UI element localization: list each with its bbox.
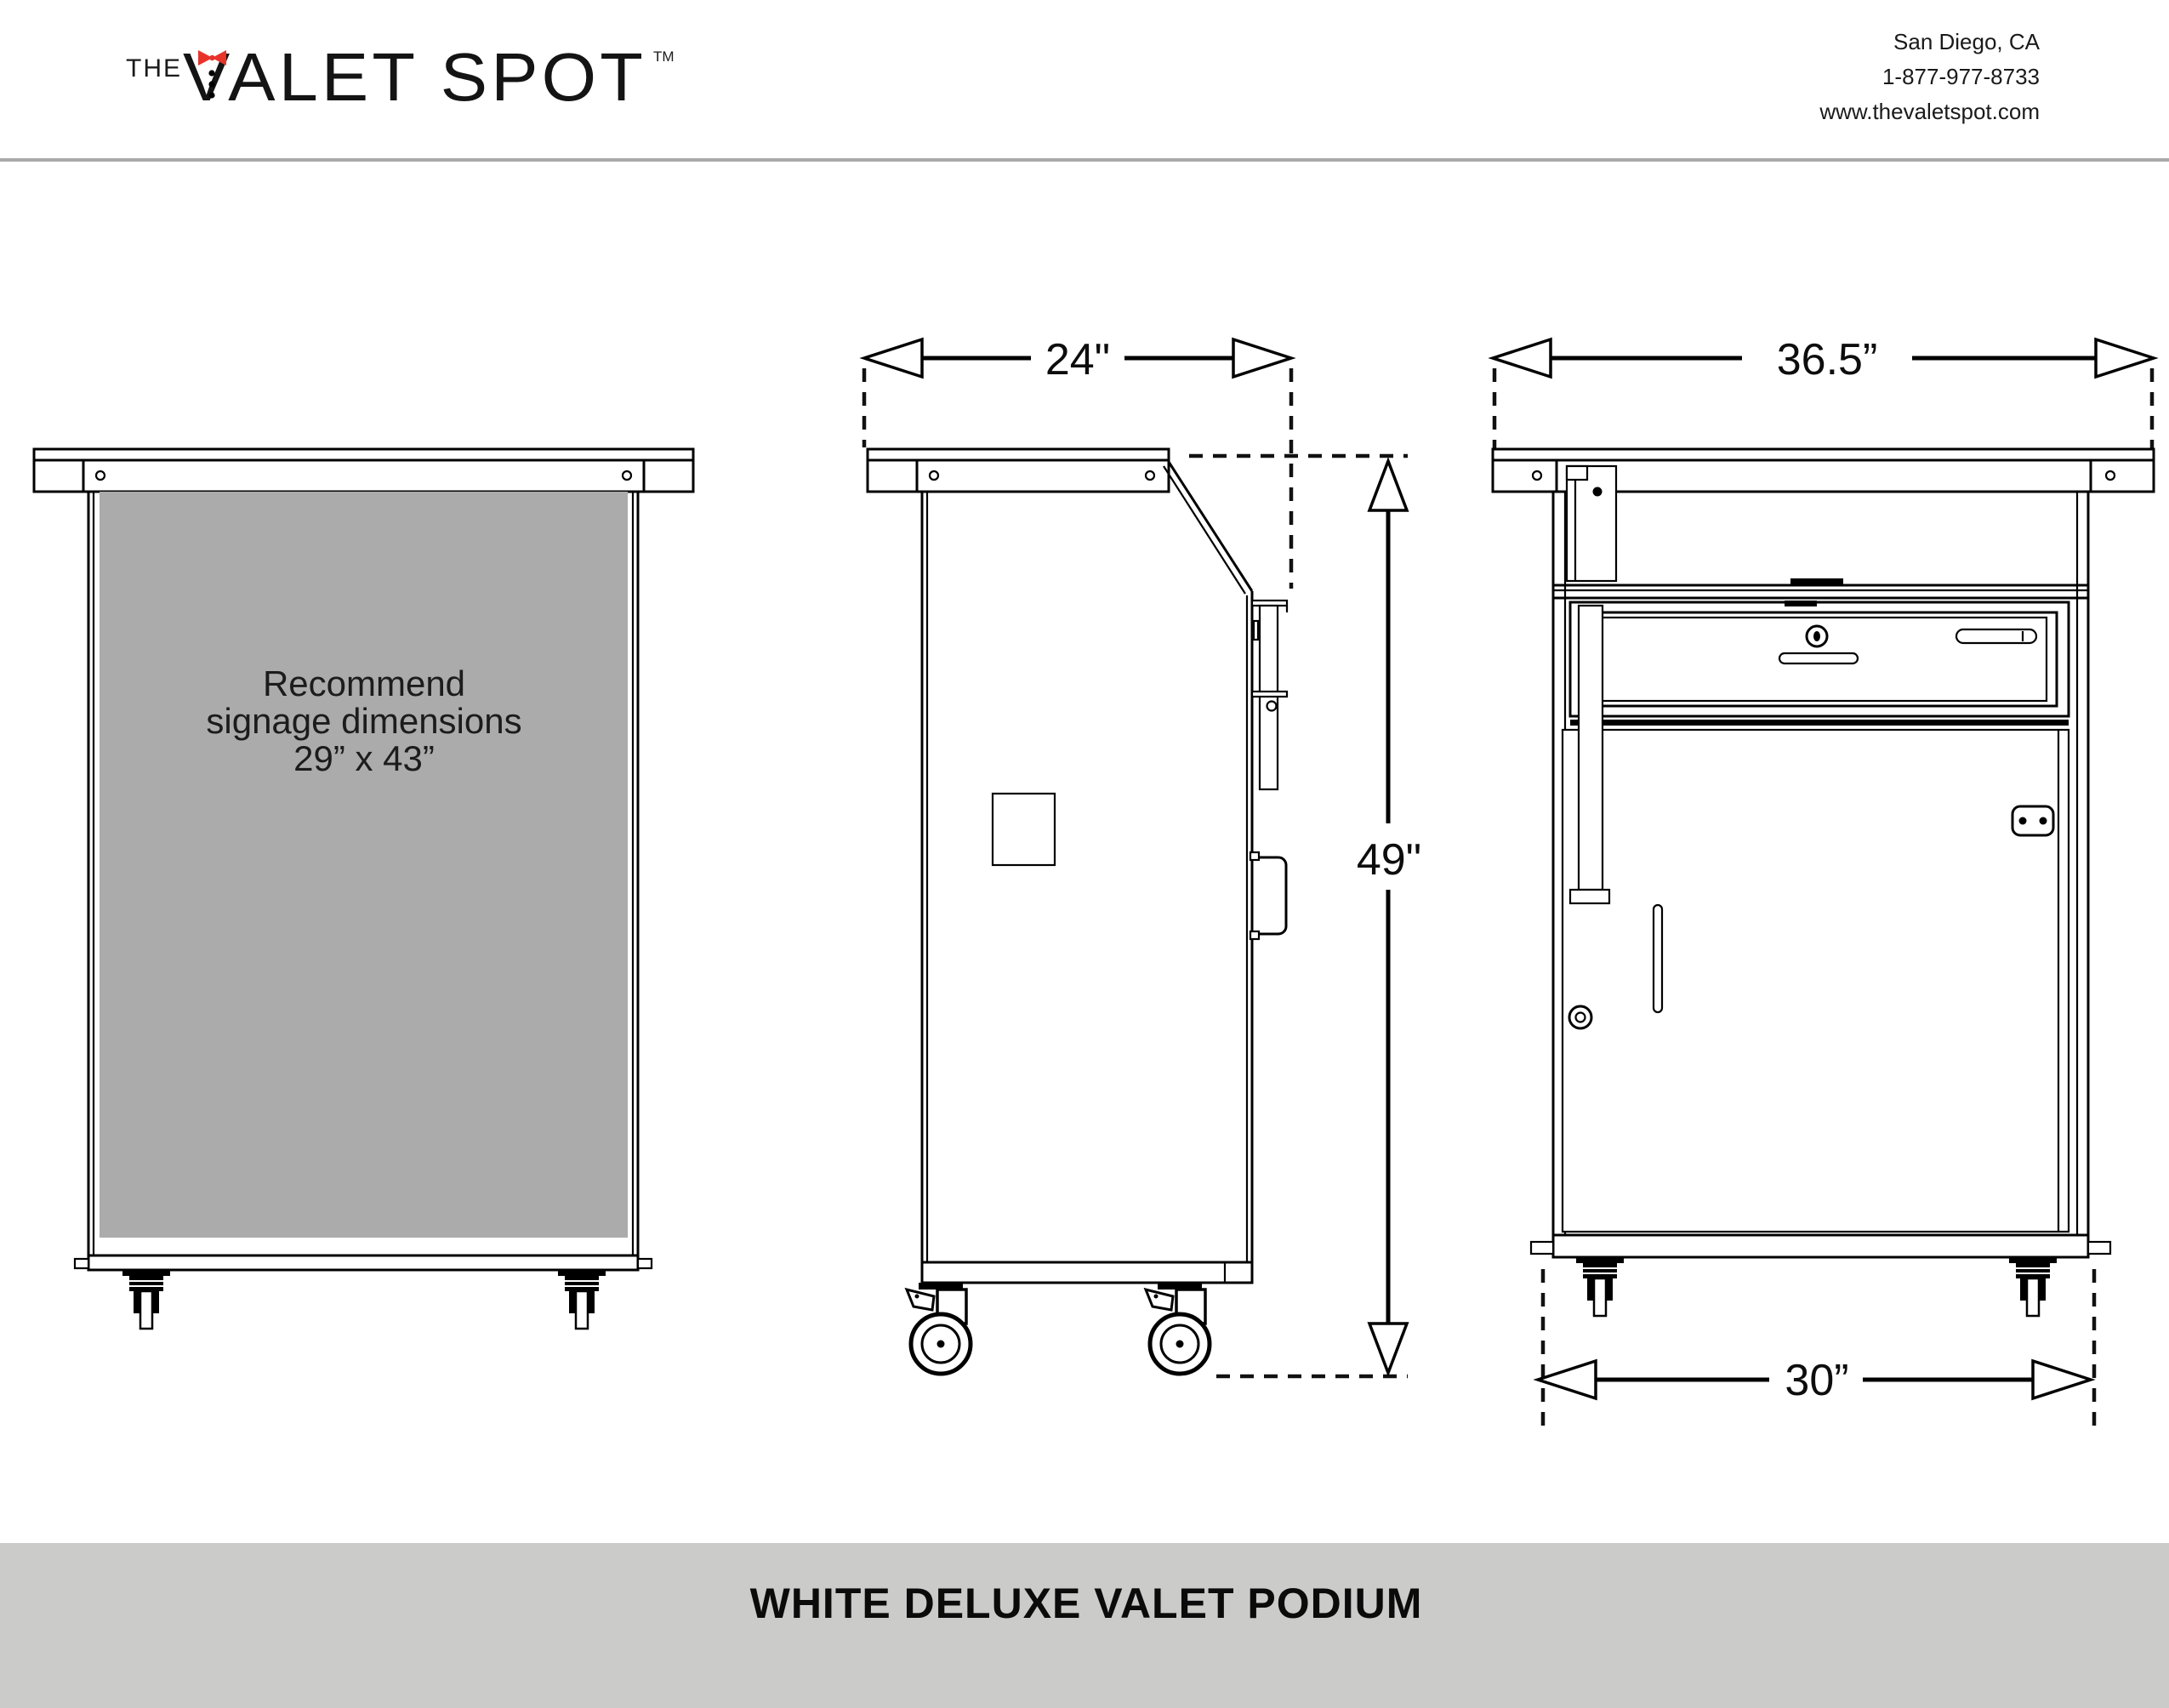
signage-note-line3: 29” x 43” xyxy=(293,738,435,778)
key-rail-foot xyxy=(1570,890,1609,903)
top-width-dimension-label: 36.5” xyxy=(1777,335,1878,384)
tabletop-band xyxy=(917,460,1169,492)
handle-profile xyxy=(1250,852,1286,939)
tabletop-left-wing xyxy=(868,460,917,492)
sloped-front-edge xyxy=(1169,462,1252,591)
caster-wheel xyxy=(1146,1283,1210,1374)
base-strip xyxy=(922,1262,1252,1283)
base-strip xyxy=(1553,1235,2088,1257)
signage-note-line1: Recommend xyxy=(263,663,465,703)
tabletop-band xyxy=(83,460,644,492)
tabletop-right-wing xyxy=(644,460,693,492)
footer: WHITE DELUXE VALET PODIUM xyxy=(0,1543,2169,1708)
screw-icon xyxy=(623,471,631,480)
drawer-slot-handle xyxy=(1956,629,2036,643)
screw-icon xyxy=(1146,471,1154,480)
height-dimension: 49" xyxy=(1357,461,1421,1373)
door-handle xyxy=(1654,905,1662,1012)
latch-clip xyxy=(1790,578,1843,586)
drawer-door-gap xyxy=(1570,720,2069,726)
drawer-pull xyxy=(1779,653,1858,663)
height-dimension-label: 49" xyxy=(1357,835,1421,885)
key-rail xyxy=(1579,606,1603,890)
base-width-dimension: 30” xyxy=(1538,1269,2094,1436)
side-panel-cutout xyxy=(993,794,1055,865)
header-divider xyxy=(0,158,2169,162)
tabletop-lip xyxy=(34,449,693,460)
header: THE VALET SPOT TM San Diego, CA 1-877-97… xyxy=(0,29,2169,162)
screw-icon xyxy=(930,471,938,480)
brand-logo: THE VALET SPOT TM xyxy=(126,39,675,115)
tuxedo-buttons-icon xyxy=(208,70,214,98)
contact-phone: 1-877-977-8733 xyxy=(1882,64,2040,89)
side-view: 24" xyxy=(864,335,1421,1376)
base-corner-tab xyxy=(75,1259,88,1268)
base-strip xyxy=(88,1255,638,1270)
screw-icon xyxy=(1533,471,1541,480)
base-corner-tab xyxy=(1531,1242,1553,1254)
depth-dimension-label: 24" xyxy=(1045,335,1110,384)
cabinet-front-view: 36.5” xyxy=(1493,335,2154,1436)
key-rail-bracket xyxy=(1567,466,1616,581)
base-width-dimension-label: 30” xyxy=(1785,1356,1848,1405)
tabletop-lip xyxy=(1493,449,2154,460)
caster-leg xyxy=(122,1270,170,1329)
logo-trademark: TM xyxy=(653,48,675,65)
caster-leg xyxy=(2009,1257,2057,1316)
tabletop-left-wing xyxy=(34,460,83,492)
front-signage-view: Recommend signage dimensions 29” x 43” xyxy=(34,449,693,1329)
product-title: WHITE DELUXE VALET PODIUM xyxy=(750,1580,1423,1627)
base-corner-tab xyxy=(2088,1242,2110,1254)
spec-sheet-page: THE VALET SPOT TM San Diego, CA 1-877-97… xyxy=(0,0,2169,1708)
spec-sheet-canvas: THE VALET SPOT TM San Diego, CA 1-877-97… xyxy=(0,0,2169,1708)
top-width-dimension: 36.5” xyxy=(1493,335,2154,449)
signage-note-line2: signage dimensions xyxy=(206,701,521,741)
caster-leg xyxy=(1576,1257,1624,1316)
contact-location: San Diego, CA xyxy=(1893,29,2041,54)
caster-wheel xyxy=(907,1283,971,1374)
logo-brand-text: VALET SPOT xyxy=(183,39,646,115)
drawer xyxy=(1570,601,2069,716)
tabletop-lip xyxy=(868,449,1169,460)
signage-panel xyxy=(100,492,628,1238)
door-face xyxy=(1563,730,2069,1232)
caster-leg xyxy=(558,1270,606,1329)
tabletop-right-wing xyxy=(2091,460,2154,492)
drawer-slide-profile xyxy=(1252,601,1287,789)
logo-prefix: THE xyxy=(126,54,182,83)
contact-website: www.thevaletspot.com xyxy=(1819,99,2040,124)
screw-icon xyxy=(2106,471,2115,480)
tabletop-left-wing xyxy=(1493,460,1557,492)
screw-icon xyxy=(96,471,105,480)
base-corner-tab xyxy=(638,1259,652,1268)
contact-block: San Diego, CA 1-877-977-8733 www.thevale… xyxy=(1819,29,2040,124)
